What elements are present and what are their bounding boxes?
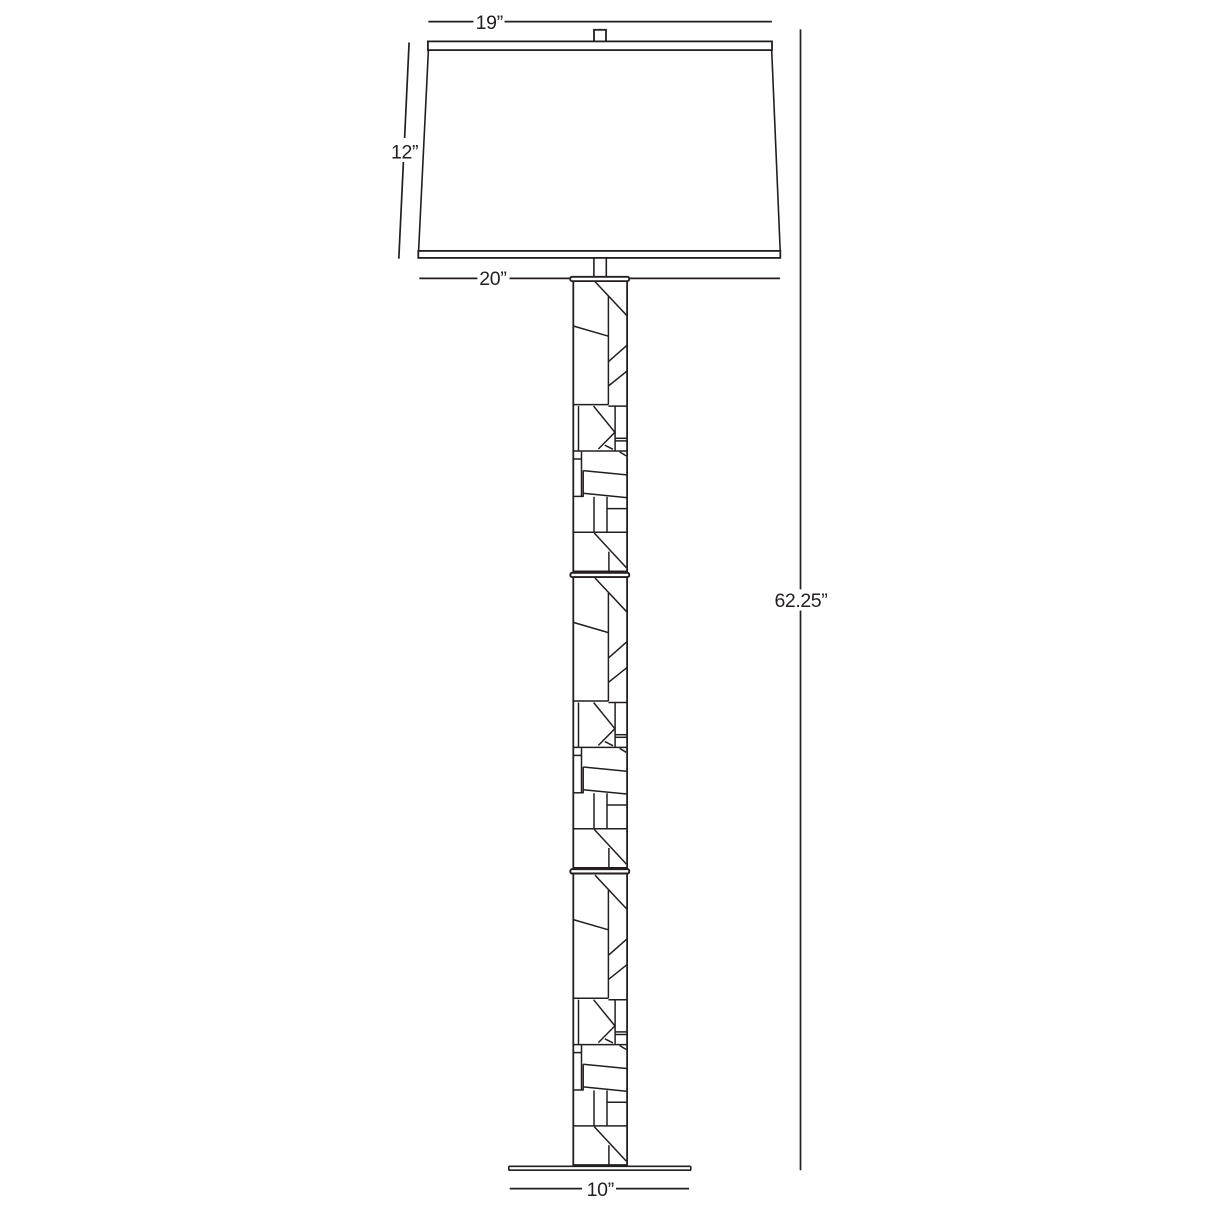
svg-text:19”: 19” [476,12,503,34]
svg-text:20”: 20” [479,268,506,290]
svg-text:10”: 10” [587,1179,614,1201]
svg-text:12”: 12” [391,142,418,164]
svg-text:62.25”: 62.25” [774,590,827,612]
